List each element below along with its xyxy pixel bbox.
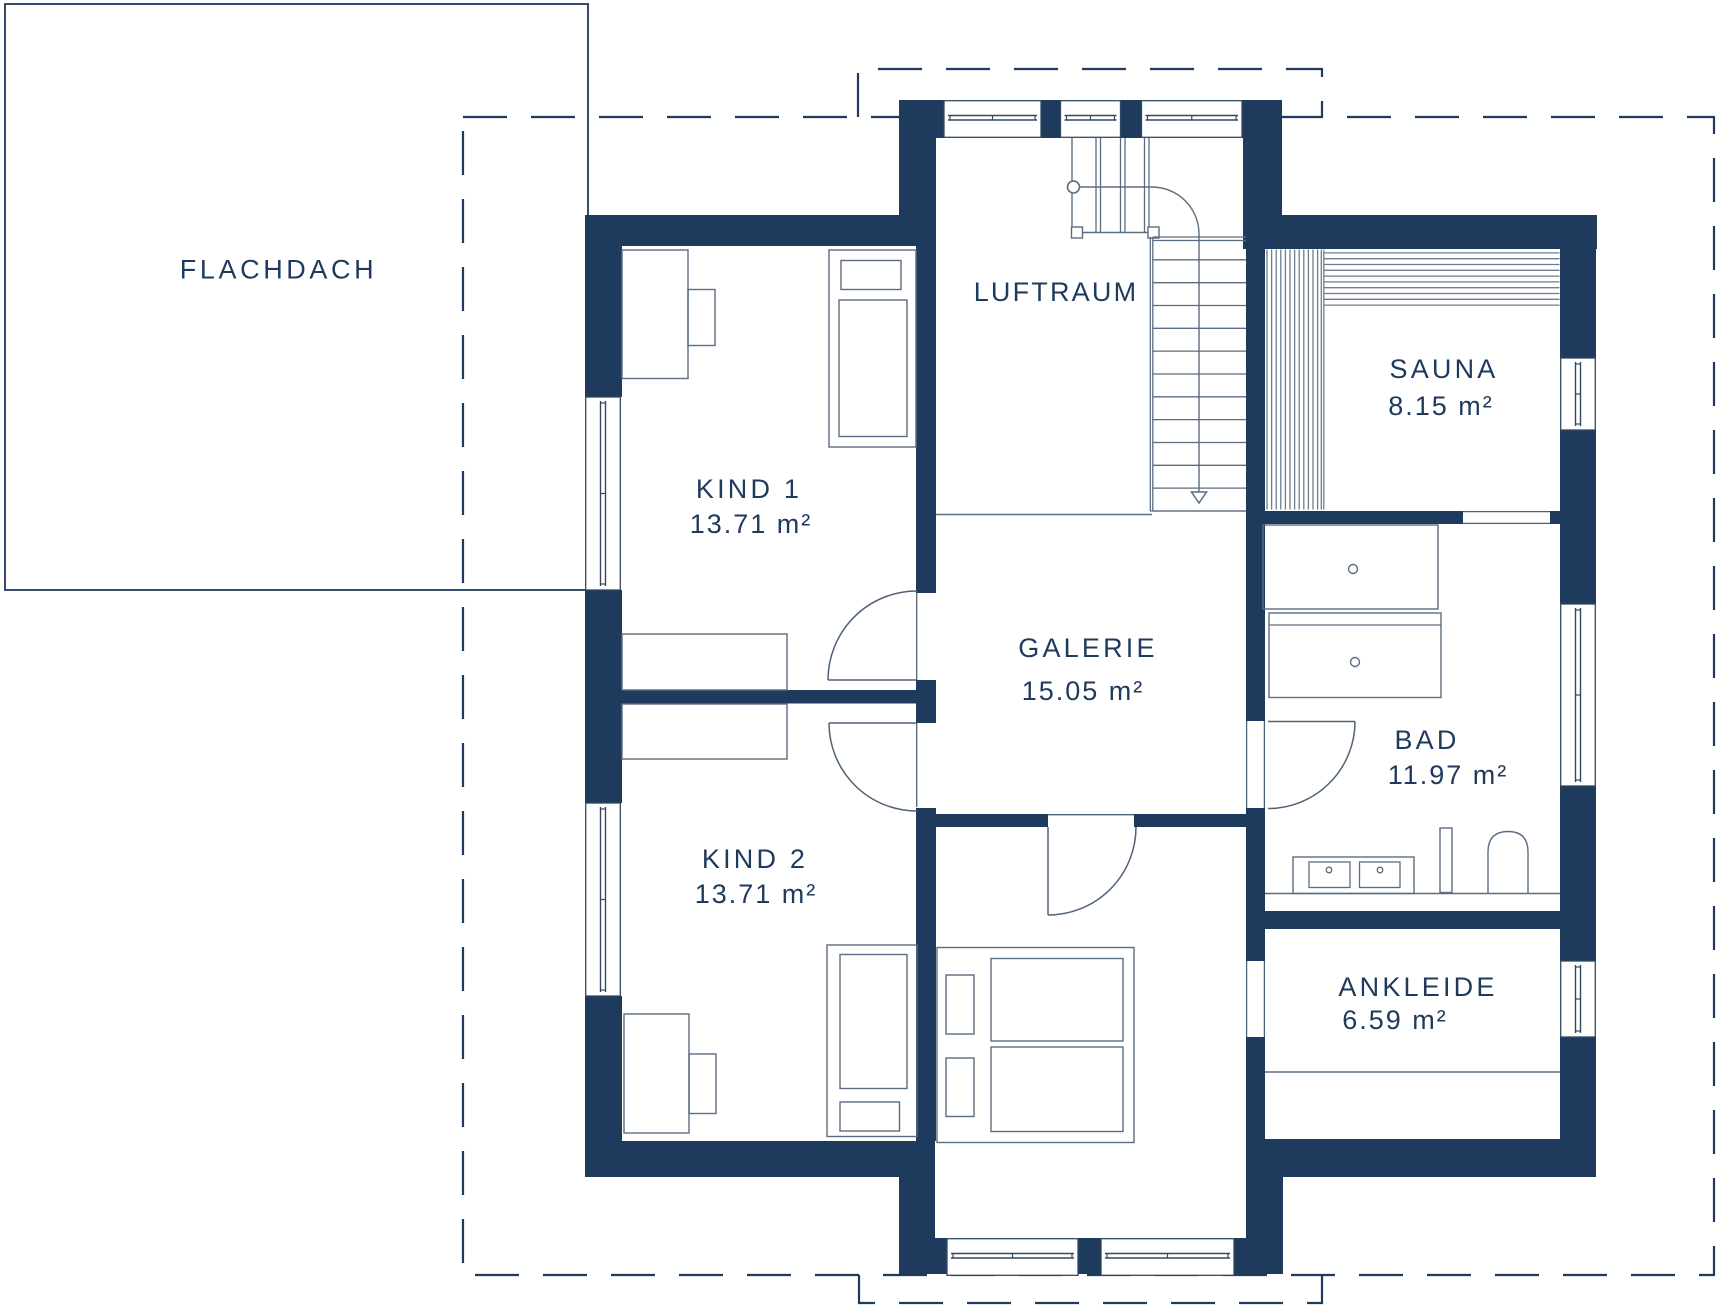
svg-text:15.05 m²: 15.05 m² — [1022, 676, 1145, 706]
svg-text:LUFTRAUM: LUFTRAUM — [974, 277, 1139, 307]
svg-text:13.71 m²: 13.71 m² — [690, 509, 813, 539]
svg-text:FLACHDACH: FLACHDACH — [180, 255, 377, 285]
svg-text:8.15 m²: 8.15 m² — [1388, 391, 1494, 421]
svg-text:GALERIE: GALERIE — [1018, 633, 1157, 663]
svg-text:SAUNA: SAUNA — [1389, 354, 1498, 384]
svg-text:11.97 m²: 11.97 m² — [1388, 760, 1509, 790]
svg-text:BAD: BAD — [1394, 725, 1459, 755]
svg-text:KIND 2: KIND 2 — [702, 844, 808, 874]
svg-text:13.71 m²: 13.71 m² — [695, 879, 818, 909]
svg-text:6.59 m²: 6.59 m² — [1342, 1005, 1448, 1035]
svg-text:KIND 1: KIND 1 — [696, 474, 802, 504]
svg-text:ANKLEIDE: ANKLEIDE — [1338, 972, 1497, 1002]
